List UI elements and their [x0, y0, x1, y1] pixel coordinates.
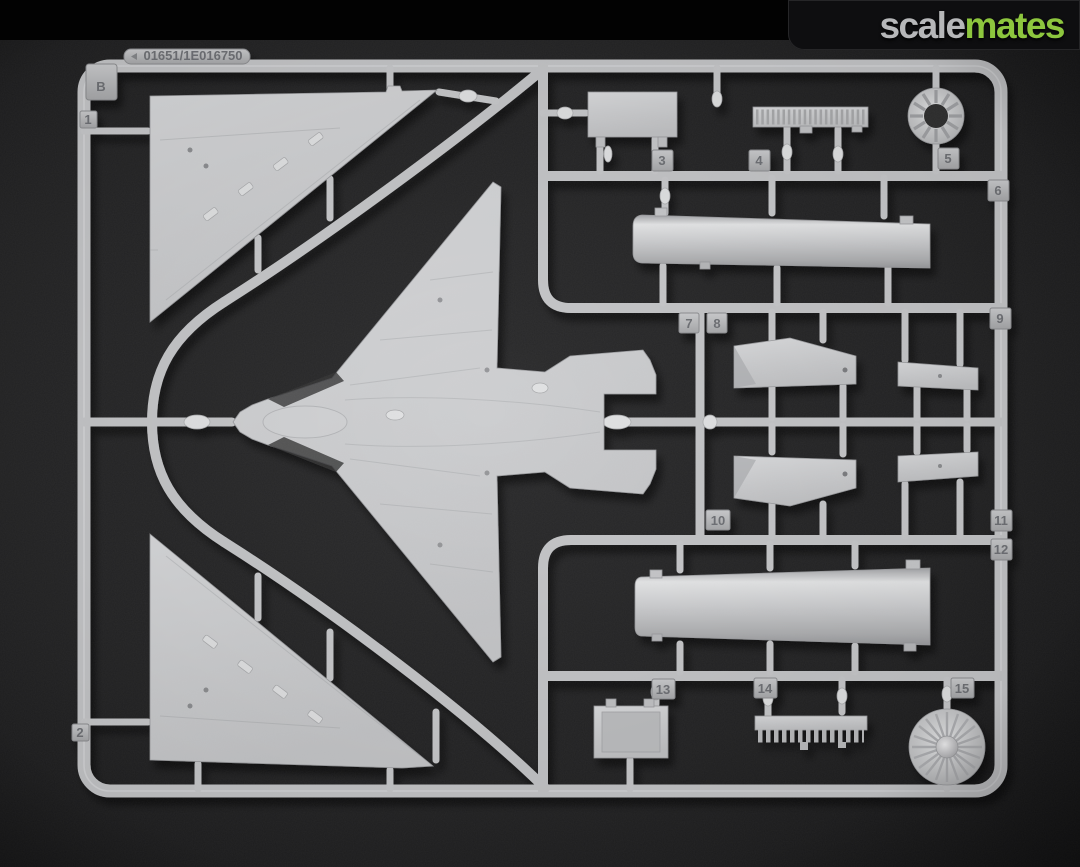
screenshot: scalemates: [0, 0, 1080, 867]
sprue-photo: B 01651/1E016750 1 2 3: [0, 0, 1080, 867]
scalemates-logo-plate: scalemates: [788, 0, 1080, 50]
photo-vignette: [0, 40, 1080, 867]
logo-text-scale: scale: [879, 5, 964, 46]
scalemates-logo[interactable]: scalemates: [879, 7, 1064, 44]
logo-text-mates: mates: [965, 5, 1064, 46]
